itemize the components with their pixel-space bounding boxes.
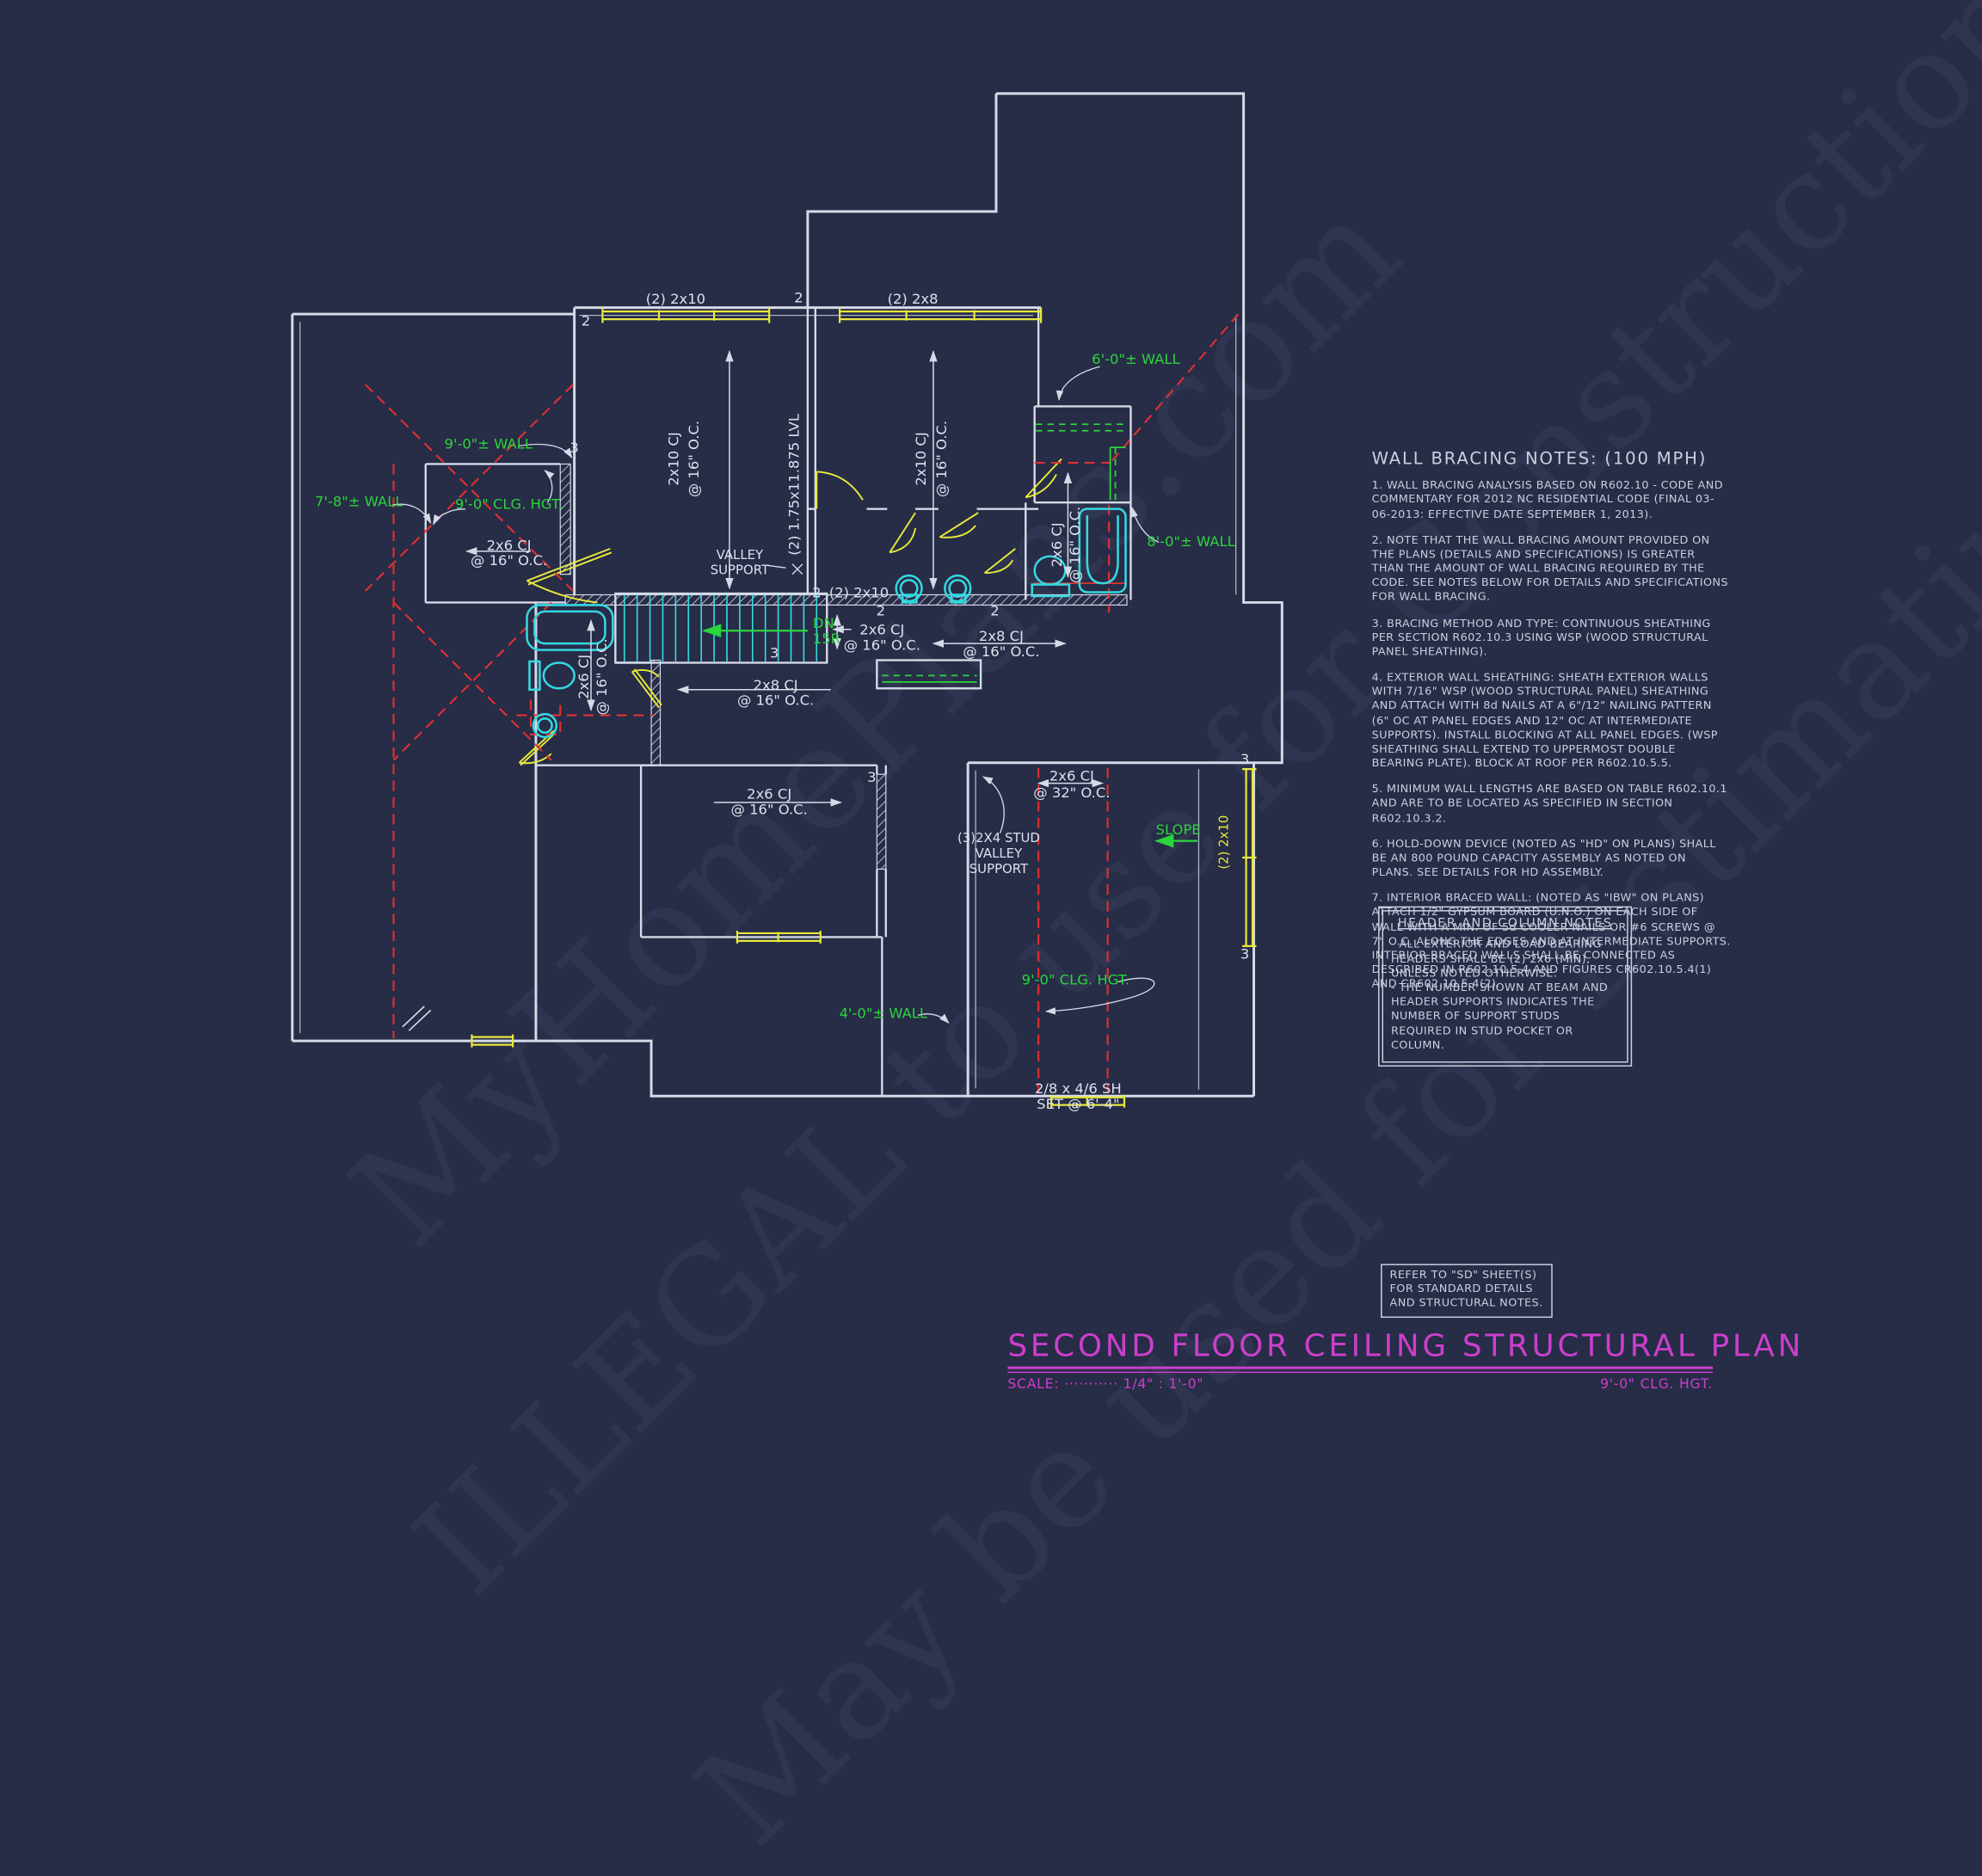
joist-2x6-hall-line1: 2x6 CJ	[859, 622, 904, 638]
wall-bracing-note-6: 6. HOLD-DOWN DEVICE (NOTED AS "HD" ON PL…	[1372, 838, 1731, 881]
wall-height-4-0: 4'-0"± WALL	[840, 1005, 928, 1021]
joist-2x6-32-line1: 2x6 CJ	[1049, 768, 1094, 784]
wall-height-8-0: 8'-0"± WALL	[1147, 533, 1235, 550]
title-underline	[1007, 1367, 1713, 1373]
wall-bracing-note-4: 4. EXTERIOR WALL SHEATHING: SHEATH EXTER…	[1372, 672, 1731, 772]
dimension-lines	[466, 351, 1102, 803]
joist-2x8-lower-line1: 2x8 CJ	[754, 677, 798, 693]
header-2x10-label: (2) 2x10	[646, 291, 705, 307]
header-column-notes-title: HEADER AND COLUMN NOTES	[1391, 917, 1619, 933]
stud-count-2-e: 2	[990, 602, 999, 618]
hatched-walls	[560, 464, 1127, 869]
joist-2x6-room2-line1: 2x6 CJ	[747, 785, 791, 802]
toilet-tank-left	[529, 661, 539, 690]
stud-valley-line2: VALLEY	[976, 846, 1023, 861]
header-column-notes-box: HEADER AND COLUMN NOTES - ALL EXTERIOR A…	[1382, 910, 1628, 1062]
header-column-note-1: - ALL EXTERIOR AND LOAD BEARING HEADERS …	[1391, 939, 1619, 982]
sheet-title: SECOND FLOOR CEILING STRUCTURAL PLAN	[1007, 1328, 1713, 1364]
lvl-beam-label: (2) 1.75x11.875 LVL	[785, 413, 802, 556]
joist-2x6-room1-line1: 2x6 CJ	[487, 537, 532, 553]
stair-dn-line1: DN	[813, 615, 834, 631]
ceiling-height-lower: 9'-0" CLG. HGT.	[1022, 972, 1129, 988]
toilet-bowl-left	[544, 662, 575, 688]
stud-count-3-d: 3	[1240, 751, 1249, 767]
joist-2x6-bath-line2: @ 16" O.C.	[594, 638, 610, 715]
wall-bracing-note-1: 1. WALL BRACING ANALYSIS BASED ON R602.1…	[1372, 480, 1731, 523]
joist-2x6-room2-line2: @ 16" O.C.	[731, 801, 808, 817]
joist-2x6-hall-line2: @ 16" O.C.	[844, 637, 920, 654]
stud-count-2-a: 2	[582, 313, 590, 329]
stud-valley-line1: (3)2X4 STUD	[957, 830, 1040, 846]
joist-2x10-left-line2: @ 16" O.C.	[686, 421, 702, 497]
ceiling-height-label: 9'-0" CLG. HGT.	[1600, 1377, 1713, 1393]
stud-count-2-c: 2	[812, 584, 821, 600]
joist-2x6-rbath-line2: @ 16" O.C.	[1067, 507, 1083, 583]
scale-label: SCALE: ··········· 1/4" : 1'-0"	[1007, 1377, 1203, 1393]
plan-labels: (2) 2x10(2) 2x82239'-0"± WALL7'-8"± WALL…	[315, 290, 1249, 1112]
ceiling-height-upper: 9'-0" CLG. HGT.	[455, 496, 563, 513]
stud-count-2-d: 2	[877, 602, 885, 618]
header-2x8-label: (2) 2x8	[888, 291, 939, 307]
window-sh-line1: 2/8 x 4/6 SH	[1035, 1080, 1122, 1097]
joist-2x6-32-line2: @ 32" O.C.	[1033, 784, 1110, 801]
stud-count-3-e: 3	[1240, 946, 1249, 963]
break-symbol	[403, 1006, 431, 1030]
stud-count-3-b: 3	[770, 645, 779, 661]
stud-count-2-b: 2	[794, 290, 803, 306]
joist-2x10-left-line1: 2x10 CJ	[665, 432, 681, 485]
stair-dn-line2: 15R	[813, 630, 840, 647]
title-block: SECOND FLOOR CEILING STRUCTURAL PLAN SCA…	[1007, 1328, 1713, 1393]
sd-reference-note: REFER TO "SD" SHEET(S) FOR STANDARD DETA…	[1381, 1264, 1552, 1317]
wall-height-9-0: 9'-0"± WALL	[445, 436, 533, 452]
joist-2x6-rbath-line1: 2x6 CJ	[1049, 522, 1065, 567]
joist-2x10-right-line1: 2x10 CJ	[913, 432, 929, 485]
joist-2x8-upper-line2: @ 16" O.C.	[963, 643, 1039, 660]
window-beam-2x10: (2) 2x10	[1216, 815, 1232, 870]
wall-bracing-note-5: 5. MINIMUM WALL LENGTHS ARE BASED ON TAB…	[1372, 784, 1731, 827]
wall-bracing-note-2: 2. NOTE THAT THE WALL BRACING AMOUNT PRO…	[1372, 534, 1731, 606]
joist-2x8-lower-line2: @ 16" O.C.	[737, 692, 814, 709]
sheet: MyHomePlans.com ILLEGAL to use for Const…	[0, 0, 1982, 1485]
flush-beam-2x10: (2) 2x10	[829, 584, 889, 600]
wall-height-7-8: 7'-8"± WALL	[315, 494, 403, 510]
wall-bracing-notes-title: WALL BRACING NOTES: (100 MPH)	[1372, 449, 1731, 471]
joist-2x8-upper-line1: 2x8 CJ	[979, 628, 1024, 644]
slope-label: SLOPE	[1156, 821, 1201, 838]
wall-height-6-0: 6'-0"± WALL	[1092, 351, 1180, 367]
headers-and-windows	[471, 308, 1256, 1108]
joist-2x6-bath-line1: 2x6 CJ	[576, 655, 592, 699]
wall-bracing-note-3: 3. BRACING METHOD AND TYPE: CONTINUOUS S…	[1372, 618, 1731, 661]
valley-support-line1: VALLEY	[717, 547, 764, 563]
stud-count-3-c: 3	[867, 769, 876, 785]
joist-2x6-room1-line2: @ 16" O.C.	[471, 552, 547, 569]
header-column-note-2: - THE NUMBER SHOWN AT BEAM AND HEADER SU…	[1391, 982, 1619, 1054]
joist-2x10-right-line2: @ 16" O.C.	[933, 421, 950, 497]
stud-valley-line3: SUPPORT	[969, 861, 1029, 876]
window-sh-line2: SET @ 6'-4"	[1037, 1096, 1119, 1112]
stud-count-3-a: 3	[569, 440, 578, 456]
valley-support-line2: SUPPORT	[711, 563, 770, 578]
